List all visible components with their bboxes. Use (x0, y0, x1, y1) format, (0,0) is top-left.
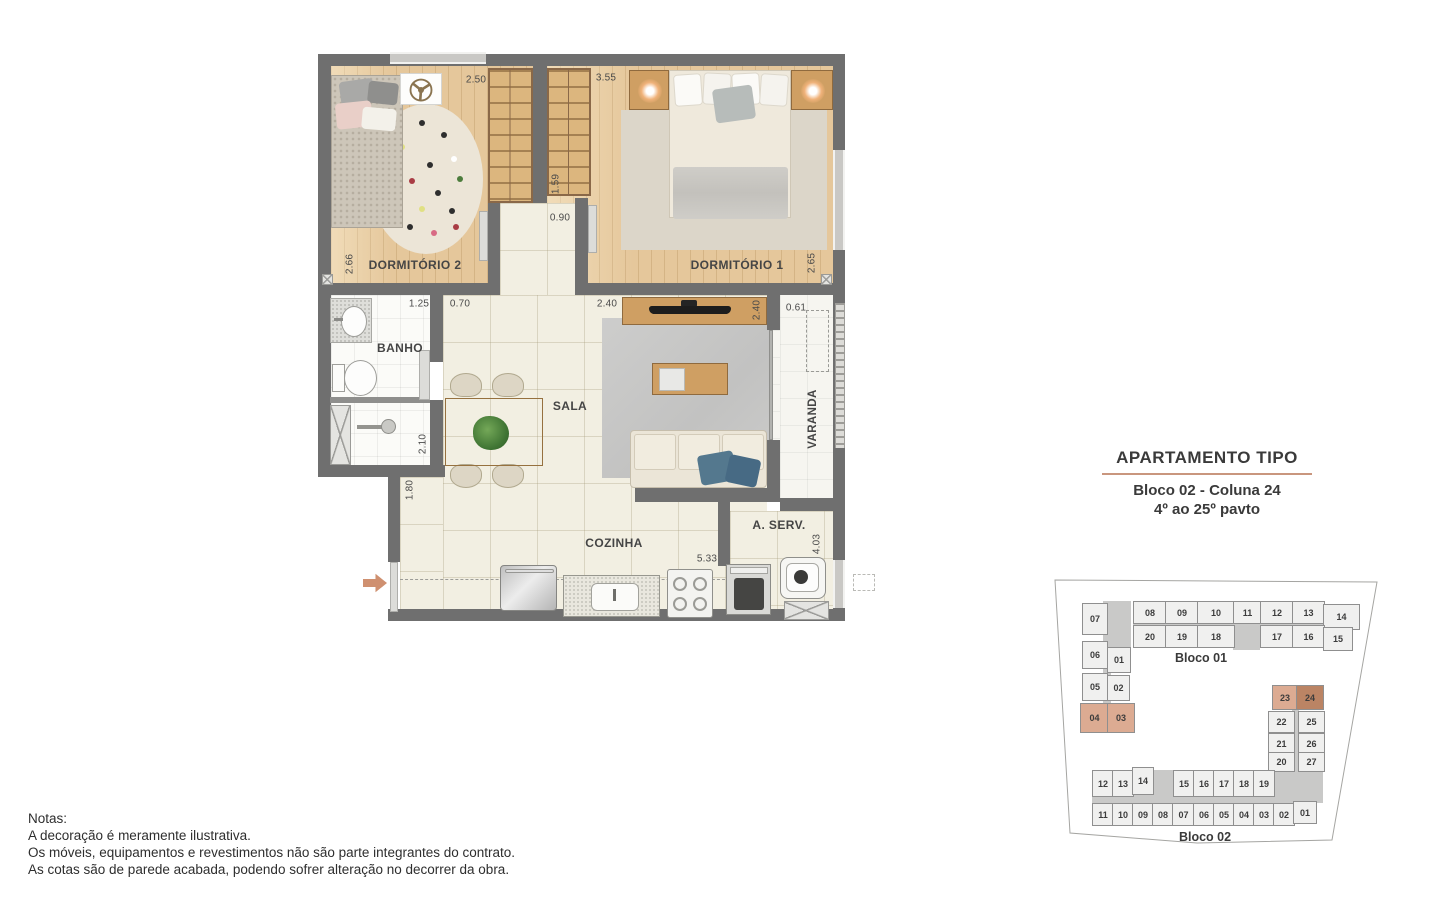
dim-dorm2-width: 2.50 (466, 75, 486, 86)
wall-varanda-top (767, 290, 780, 330)
dining-chair (492, 373, 524, 397)
keyplan: 0706050401020308091011121314201918171615… (1050, 578, 1390, 868)
wall-dorm2-bottom (318, 283, 500, 295)
dorm2-door (479, 211, 488, 261)
tv-panel (622, 297, 767, 325)
dim-cozinha-width: 5.33 (697, 554, 717, 565)
dim-dorm2-depth: 2.66 (345, 254, 356, 274)
bed-pillow (367, 80, 399, 105)
rug-dot (457, 176, 463, 182)
banho-door (419, 350, 430, 400)
dorm1-window (833, 150, 845, 250)
dim-wardrobe-depth: 1.59 (551, 174, 562, 194)
title-subtitle1: Bloco 02 - Coluna 24 (1057, 482, 1357, 499)
banho-vanity (330, 298, 372, 343)
keyplan-unit-14: 14 (1132, 767, 1154, 795)
kitchen-counter (563, 575, 660, 617)
wall-aserv-divider (718, 498, 730, 566)
room-label-varanda: VARANDA (807, 389, 819, 448)
entrance-arrow-icon (363, 572, 387, 594)
dim-sala-offset: 0.70 (450, 299, 470, 310)
keyplan-unit-11: 11 (1092, 803, 1114, 826)
shaft-box (330, 405, 351, 465)
toilet-bowl (344, 360, 377, 396)
title-underline (1102, 473, 1312, 475)
sofa-cushion (634, 434, 676, 470)
washer-panel (730, 567, 768, 574)
wall-banho-right-upper (430, 295, 443, 362)
laundry-tank (780, 557, 826, 599)
title-block: APARTAMENTO TIPO Bloco 02 - Coluna 24 4º… (1057, 448, 1357, 518)
washer (726, 564, 771, 615)
dim-cozinha-offset: 1.80 (405, 480, 416, 500)
page-title: APARTAMENTO TIPO (1057, 448, 1357, 468)
stove (667, 569, 713, 618)
dining-chair (492, 464, 524, 488)
wall-banho-bottom (318, 465, 445, 477)
keyplan-bloco02-label: Bloco 02 (1179, 830, 1231, 844)
room-label-banho: BANHO (377, 341, 423, 355)
banho-sink (341, 306, 367, 337)
page: { "title_block": { "title": "APARTAMENTO… (0, 0, 1440, 900)
ac-unit-dashed (806, 310, 829, 372)
shower-head (381, 419, 396, 434)
wall-hall-left (488, 203, 500, 295)
magazine (659, 368, 685, 391)
keyplan-unit-02: 02 (1273, 803, 1295, 826)
coffee-table (652, 363, 728, 395)
nightstand-left (629, 70, 669, 110)
rug-dot (431, 230, 437, 236)
aserv-window (833, 560, 845, 608)
room-label-aserv: A. SERV. (752, 518, 805, 532)
keyplan-unit-03: 03 (1253, 803, 1275, 826)
keyplan-unit-01: 01 (1293, 801, 1317, 824)
stove-burner (673, 577, 687, 591)
keyplan-unit-19: 19 (1253, 770, 1275, 797)
varanda-railing (835, 303, 845, 448)
kitchen-faucet (613, 589, 616, 601)
rug-dot (435, 190, 441, 196)
keyplan-unit-08: 08 (1152, 803, 1174, 826)
notes-block: Notas: A decoração é meramente ilustrati… (28, 810, 628, 878)
keyplan-unit-16: 16 (1193, 770, 1215, 797)
keyplan-unit-07: 07 (1172, 803, 1195, 826)
dorm1-bed (669, 70, 791, 218)
rug-dot (409, 178, 415, 184)
bed-accent-pillow (712, 84, 756, 123)
stove-burner (673, 597, 687, 611)
dim-dorm1-depth: 2.65 (807, 253, 818, 273)
rug-dot (427, 162, 433, 168)
lamp (638, 79, 662, 103)
room-label-sala: SALA (553, 399, 587, 413)
keyplan-unit-06: 06 (1193, 803, 1215, 826)
keyplan-bloco02-units: 2324222521262027121314151617181911100908… (1050, 578, 1390, 868)
dim-dorm1-width: 3.55 (596, 73, 616, 84)
tank-drain (794, 570, 808, 584)
washer-drum (734, 578, 764, 610)
bed-pillow (673, 73, 703, 107)
keyplan-unit-05: 05 (1213, 803, 1235, 826)
notes-line: Os móveis, equipamentos e revestimentos … (28, 844, 628, 861)
dorm2-wardrobe (488, 68, 533, 203)
dim-sala-depth: 2.40 (752, 300, 763, 320)
keyplan-unit-26: 26 (1298, 733, 1325, 754)
fridge-handle (505, 569, 554, 573)
floor-plan: DORMITÓRIO 2 DORMITÓRIO 1 BANHO SALA COZ… (313, 48, 850, 626)
nightstand-right (791, 70, 833, 110)
keyplan-unit-22: 22 (1268, 711, 1295, 733)
tv-screen (649, 306, 731, 314)
wall-hall-right (575, 198, 588, 295)
wall-wardrobe-divider (533, 66, 547, 203)
stove-burner (693, 597, 707, 611)
dim-banho-width: 1.25 (409, 299, 429, 310)
entrance-door (390, 562, 398, 612)
wall-dorm1-bottom (575, 283, 845, 295)
keyplan-unit-13: 13 (1112, 770, 1134, 797)
dim-banho-depth: 2.10 (418, 434, 429, 454)
dorm2-bed (331, 75, 403, 228)
keyplan-unit-10: 10 (1112, 803, 1134, 826)
dining-chair (450, 373, 482, 397)
fan-icon (406, 75, 436, 105)
wall-sofa (635, 488, 780, 502)
room-label-dormitorio1: DORMITÓRIO 1 (691, 258, 784, 272)
notes-line: A decoração é meramente ilustrativa. (28, 827, 628, 844)
wall-cozinha-left (388, 477, 400, 562)
sofa-pillow-blue (724, 454, 761, 488)
rug-dot (407, 224, 413, 230)
stove-burner (693, 577, 707, 591)
rug-dot (451, 156, 457, 162)
dorm2-window (390, 52, 486, 64)
keyplan-unit-17: 17 (1213, 770, 1235, 797)
wall-mark (821, 274, 832, 285)
rug-dot (419, 120, 425, 126)
banho-faucet (334, 318, 343, 321)
dim-varanda-depth: 4.03 (812, 534, 823, 554)
shaft-box-aserv (784, 601, 829, 620)
dorm1-door (588, 205, 597, 253)
keyplan-unit-09: 09 (1132, 803, 1154, 826)
keyplan-unit-20: 20 (1268, 752, 1295, 772)
sofa (630, 430, 767, 488)
dining-chair (450, 464, 482, 488)
rug-dot (453, 224, 459, 230)
condenser-dashed (853, 574, 875, 591)
rug-dot (449, 208, 455, 214)
dim-varanda-width: 0.61 (786, 303, 806, 314)
room-label-dormitorio2: DORMITÓRIO 2 (369, 258, 462, 272)
room-label-cozinha: COZINHA (585, 536, 642, 550)
rug-dot (419, 206, 425, 212)
dim-hall-width: 0.90 (550, 213, 570, 224)
keyplan-unit-12: 12 (1092, 770, 1114, 797)
keyplan-unit-04: 04 (1233, 803, 1255, 826)
keyplan-unit-25: 25 (1298, 711, 1325, 733)
title-subtitle2: 4º ao 25º pavto (1057, 501, 1357, 518)
wall-mark (322, 274, 333, 285)
keyplan-unit-27: 27 (1298, 752, 1325, 772)
wall-aserv-top (780, 498, 845, 511)
bed-blanket (673, 167, 788, 219)
bed-pillow (759, 73, 789, 107)
rug-dot (441, 132, 447, 138)
keyplan-unit-18: 18 (1233, 770, 1255, 797)
wall-banho-right-lower (430, 400, 443, 465)
dim-sala-width: 2.40 (597, 299, 617, 310)
keyplan-unit-23: 23 (1272, 685, 1298, 710)
keyplan-unit-21: 21 (1268, 733, 1295, 754)
lamp (801, 79, 825, 103)
ceiling-fan (400, 73, 442, 105)
fridge (500, 565, 557, 611)
wall-banho-divider (330, 397, 430, 403)
slider-door (769, 330, 773, 440)
keyplan-unit-15: 15 (1173, 770, 1195, 797)
bed-pillow (361, 107, 397, 132)
keyplan-bloco01-label: Bloco 01 (1175, 651, 1227, 665)
notes-line: As cotas são de parede acabada, podendo … (28, 861, 628, 878)
notes-heading: Notas: (28, 810, 628, 827)
keyplan-unit-24: 24 (1296, 685, 1324, 710)
table-plant (473, 416, 509, 450)
